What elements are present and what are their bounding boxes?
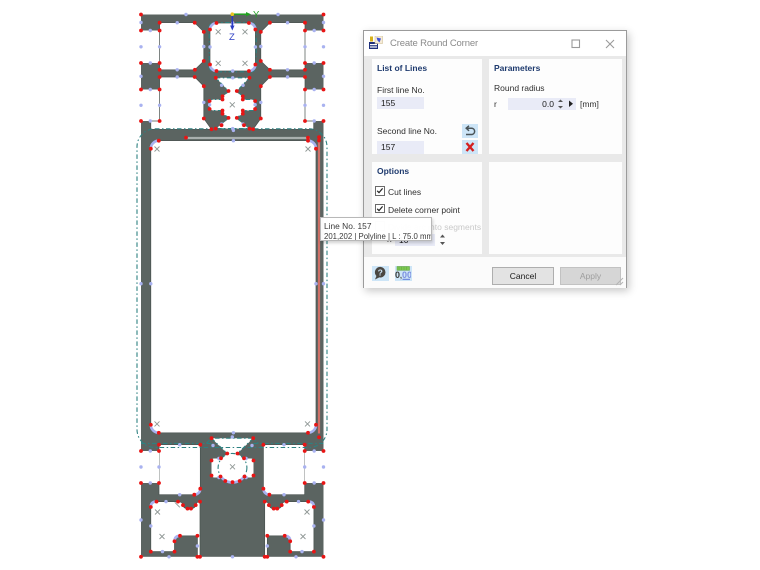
svg-text:Y: Y <box>253 10 260 21</box>
svg-text:Z: Z <box>229 32 235 43</box>
svg-text:?: ? <box>378 267 383 277</box>
svg-text:0,00: 0,00 <box>395 270 411 280</box>
